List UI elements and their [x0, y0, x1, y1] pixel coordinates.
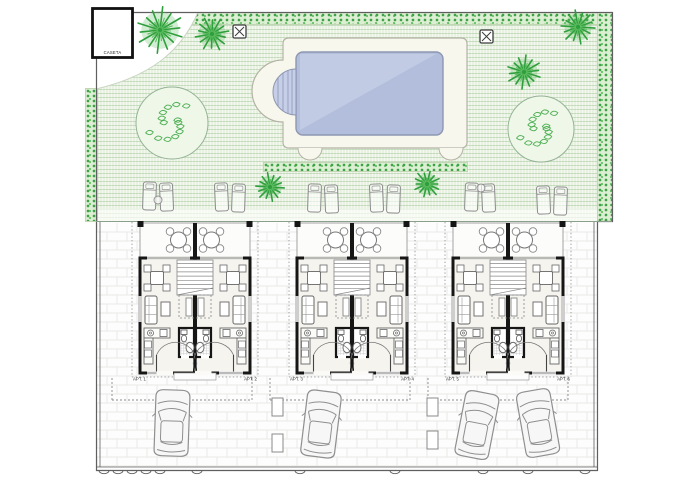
palm-tree: [415, 171, 439, 196]
window-gap: [376, 371, 400, 375]
dining-chair: [476, 265, 483, 272]
site-plan: APT. 1APT. 2APT. 3APT. 4APT. 5APT. 6 CAS…: [0, 0, 700, 500]
terrace-chair: [496, 228, 504, 236]
dining-chair: [301, 284, 308, 291]
terrace-chair: [512, 228, 520, 236]
terrace-door-gap: [200, 256, 243, 260]
x-box-marker: [480, 30, 493, 43]
coffee-table: [161, 302, 170, 316]
palm-tree: [195, 18, 228, 49]
appliance: [302, 341, 309, 348]
lounger-frame: [387, 185, 401, 213]
dining-chair: [239, 265, 246, 272]
dining-table: [151, 272, 164, 285]
tree-trunk: [522, 70, 526, 74]
sun-lounger: [324, 185, 338, 214]
kitchen-hob: [317, 330, 324, 337]
planter-box: [272, 398, 283, 416]
duplex-block: APT. 3APT. 4: [289, 221, 415, 382]
round-bush: [136, 87, 208, 159]
kitchen-hob: [473, 330, 480, 337]
dining-chair: [377, 284, 384, 291]
dining-table: [384, 272, 397, 285]
dining-chair: [377, 265, 384, 272]
lounger-frame: [554, 187, 568, 215]
dining-table: [540, 272, 553, 285]
side-window-gap: [138, 296, 142, 322]
planter-box: [272, 434, 283, 452]
kitchen-sink: [148, 330, 154, 336]
car: [151, 389, 193, 456]
sofa: [233, 296, 245, 324]
car: [451, 389, 503, 461]
appliance: [552, 350, 559, 357]
terrace-chair: [340, 228, 348, 236]
sofa: [145, 296, 157, 324]
sun-lounger: [143, 182, 157, 210]
terrace-chair: [340, 245, 348, 253]
dining-table: [308, 272, 321, 285]
sun-loungers: [143, 182, 568, 215]
side-table: [477, 184, 485, 192]
lounger-frame: [143, 182, 157, 210]
terrace-chair: [529, 228, 537, 236]
toilet-bowl: [203, 335, 208, 342]
dining-chair: [396, 265, 403, 272]
terrace-chair: [216, 245, 224, 253]
terrace-chair: [199, 228, 207, 236]
sofa: [302, 296, 314, 324]
terrace-chair: [183, 245, 191, 253]
lounger-frame: [369, 184, 383, 213]
lounger-backrest: [215, 191, 228, 192]
kitchen-sink: [305, 330, 311, 336]
toilet-bowl: [360, 335, 365, 342]
door-gap: [352, 371, 369, 375]
unit-label: APT. 5: [446, 377, 459, 382]
dining-chair: [552, 265, 559, 272]
terrace-chair: [529, 245, 537, 253]
dining-chair: [320, 265, 327, 272]
sun-lounger: [554, 187, 568, 215]
car-body: [300, 389, 342, 459]
terrace-chair: [373, 228, 381, 236]
sun-lounger: [214, 183, 228, 212]
lounger-frame: [232, 184, 246, 212]
understair-closet: [511, 298, 517, 316]
appliance: [396, 341, 403, 348]
side-window-gap: [295, 296, 299, 322]
toilet-cistern: [360, 330, 366, 335]
dining-chair: [476, 284, 483, 291]
terrace-chair: [216, 228, 224, 236]
pillar: [138, 221, 144, 227]
dining-chair: [144, 284, 151, 291]
terrace-chair: [356, 228, 364, 236]
dining-chair: [239, 284, 246, 291]
planter-box: [427, 431, 438, 449]
lounger-backrest: [370, 192, 383, 193]
side-window-gap: [405, 296, 409, 322]
sofa: [546, 296, 558, 324]
coffee-table: [474, 302, 483, 316]
kitchen-hob: [380, 330, 387, 337]
kitchen-hob: [223, 330, 230, 337]
understair-closet: [355, 298, 361, 316]
door-gap: [157, 371, 174, 375]
kitchen-hob: [536, 330, 543, 337]
tree-trunk: [158, 28, 162, 32]
terrace-door-gap: [513, 256, 556, 260]
terrace-door-gap: [460, 256, 503, 260]
door-gap: [508, 371, 525, 375]
dining-chair: [163, 265, 170, 272]
understair-closet: [499, 298, 505, 316]
site-plan-drawing: APT. 1APT. 2APT. 3APT. 4APT. 5APT. 6 CAS…: [0, 0, 700, 500]
terrace-chair: [323, 245, 331, 253]
staircase: [334, 260, 370, 295]
duplex-block: APT. 1APT. 2: [132, 221, 258, 382]
dining-chair: [320, 284, 327, 291]
tree-trunk: [425, 182, 429, 186]
x-box-marker: [233, 25, 246, 38]
lounger-frame: [159, 183, 173, 212]
terrace-chair: [323, 228, 331, 236]
dining-chair: [457, 284, 464, 291]
palm-tree: [561, 10, 595, 44]
pillar: [451, 221, 457, 227]
dining-chair: [457, 265, 464, 272]
unit-label: APT. 3: [290, 377, 303, 382]
door-gap: [470, 371, 487, 375]
dining-chair: [220, 284, 227, 291]
tree-trunk: [210, 32, 214, 36]
unit-label: APT. 6: [557, 377, 570, 382]
swimming-pool-area: [252, 38, 467, 160]
terrace-chair: [479, 228, 487, 236]
terrace-chair: [479, 245, 487, 253]
lounger-backrest: [537, 194, 550, 195]
toilet-bowl: [338, 335, 343, 342]
technical-building-label: CASETA: [104, 50, 122, 55]
coffee-table: [533, 302, 542, 316]
dining-chair: [144, 265, 151, 272]
bath-door-gap: [514, 356, 522, 359]
dining-chair: [220, 265, 227, 272]
sun-lounger: [308, 184, 322, 212]
car: [297, 389, 345, 459]
understair-closet: [186, 298, 192, 316]
dining-chair: [163, 284, 170, 291]
staircase: [490, 260, 526, 295]
dining-table: [227, 272, 240, 285]
lounger-backrest: [325, 193, 338, 194]
appliance: [552, 341, 559, 348]
understair-closet: [198, 298, 204, 316]
deck-lawn-step: [439, 148, 463, 160]
kitchen-hob: [160, 330, 167, 337]
terrace-chair: [183, 228, 191, 236]
toilet-bowl: [181, 335, 186, 342]
understair-closet: [343, 298, 349, 316]
appliance: [145, 341, 152, 348]
parking-area: [112, 378, 568, 461]
dining-chair: [396, 284, 403, 291]
pillar: [247, 221, 253, 227]
sun-lounger: [465, 183, 479, 211]
duplex-block: APT. 5APT. 6: [445, 221, 571, 382]
toilet-bowl: [494, 335, 499, 342]
toilet-cistern: [338, 330, 344, 335]
window-gap: [219, 371, 243, 375]
side-window-gap: [561, 296, 565, 322]
palm-tree: [256, 173, 284, 201]
side-window-gap: [451, 296, 455, 322]
coffee-table: [377, 302, 386, 316]
appliance: [302, 350, 309, 357]
kitchen-sink: [461, 330, 467, 336]
door-gap: [314, 371, 331, 375]
coffee-table: [318, 302, 327, 316]
pillar: [404, 221, 410, 227]
tree-trunk: [268, 185, 272, 189]
bath-door-gap: [181, 356, 189, 359]
lounger-frame: [536, 186, 550, 215]
appliance: [458, 350, 465, 357]
appliance: [239, 350, 246, 357]
terrace-chair: [373, 245, 381, 253]
deck-lawn-step: [298, 148, 322, 160]
tree-trunk: [576, 25, 580, 29]
dining-chair: [533, 284, 540, 291]
kitchen-sink: [550, 330, 556, 336]
dining-chair: [301, 265, 308, 272]
lounger-backrest: [482, 192, 495, 193]
sun-lounger: [232, 184, 246, 212]
lounger-frame: [308, 184, 322, 212]
round-bush: [508, 96, 574, 162]
planter-box: [427, 398, 438, 416]
dining-table: [464, 272, 477, 285]
toilet-bowl: [516, 335, 521, 342]
bath-door-gap: [201, 356, 209, 359]
staircase: [177, 260, 213, 295]
sun-lounger: [536, 186, 550, 215]
palm-tree: [508, 55, 540, 89]
bath-door-gap: [338, 356, 346, 359]
side-table: [154, 196, 162, 204]
terrace-chair: [199, 245, 207, 253]
terrace-door-gap: [304, 256, 347, 260]
kitchen-sink: [394, 330, 400, 336]
terrace-chair: [166, 228, 174, 236]
kitchen-sink: [237, 330, 243, 336]
lounger-backrest: [160, 191, 173, 192]
terrace-chair: [496, 245, 504, 253]
terrace-door-gap: [357, 256, 400, 260]
unit-label: APT. 4: [401, 377, 414, 382]
side-window-gap: [248, 296, 252, 322]
terrace-chair: [512, 245, 520, 253]
toilet-cistern: [494, 330, 500, 335]
sun-lounger: [369, 184, 383, 213]
unit-label: APT. 2: [244, 377, 257, 382]
technical-building: CASETA: [93, 9, 133, 58]
terrace-chair: [356, 245, 364, 253]
dining-chair: [552, 284, 559, 291]
toilet-cistern: [203, 330, 209, 335]
bath-door-gap: [494, 356, 502, 359]
lounger-frame: [214, 183, 228, 212]
appliance: [239, 341, 246, 348]
appliance: [458, 341, 465, 348]
appliance: [145, 350, 152, 357]
lounger-frame: [324, 185, 338, 214]
unit-label: APT. 1: [133, 377, 146, 382]
bath-door-gap: [358, 356, 366, 359]
generated-plan-layers: APT. 1APT. 2APT. 3APT. 4APT. 5APT. 6: [96, 7, 613, 474]
bush-outline: [136, 87, 208, 159]
dining-chair: [533, 265, 540, 272]
door-gap: [195, 371, 212, 375]
sofa: [458, 296, 470, 324]
lounger-frame: [465, 183, 479, 211]
coffee-table: [220, 302, 229, 316]
window-gap: [532, 371, 556, 375]
car-body: [154, 389, 190, 456]
toilet-cistern: [516, 330, 522, 335]
pillar: [295, 221, 301, 227]
pillar: [560, 221, 566, 227]
terrace-chair: [166, 245, 174, 253]
bush-outline: [508, 96, 574, 162]
appliance: [396, 350, 403, 357]
sun-lounger: [387, 185, 401, 213]
sun-lounger: [159, 183, 173, 212]
sofa: [390, 296, 402, 324]
terrace-door-gap: [147, 256, 190, 260]
toilet-cistern: [181, 330, 187, 335]
